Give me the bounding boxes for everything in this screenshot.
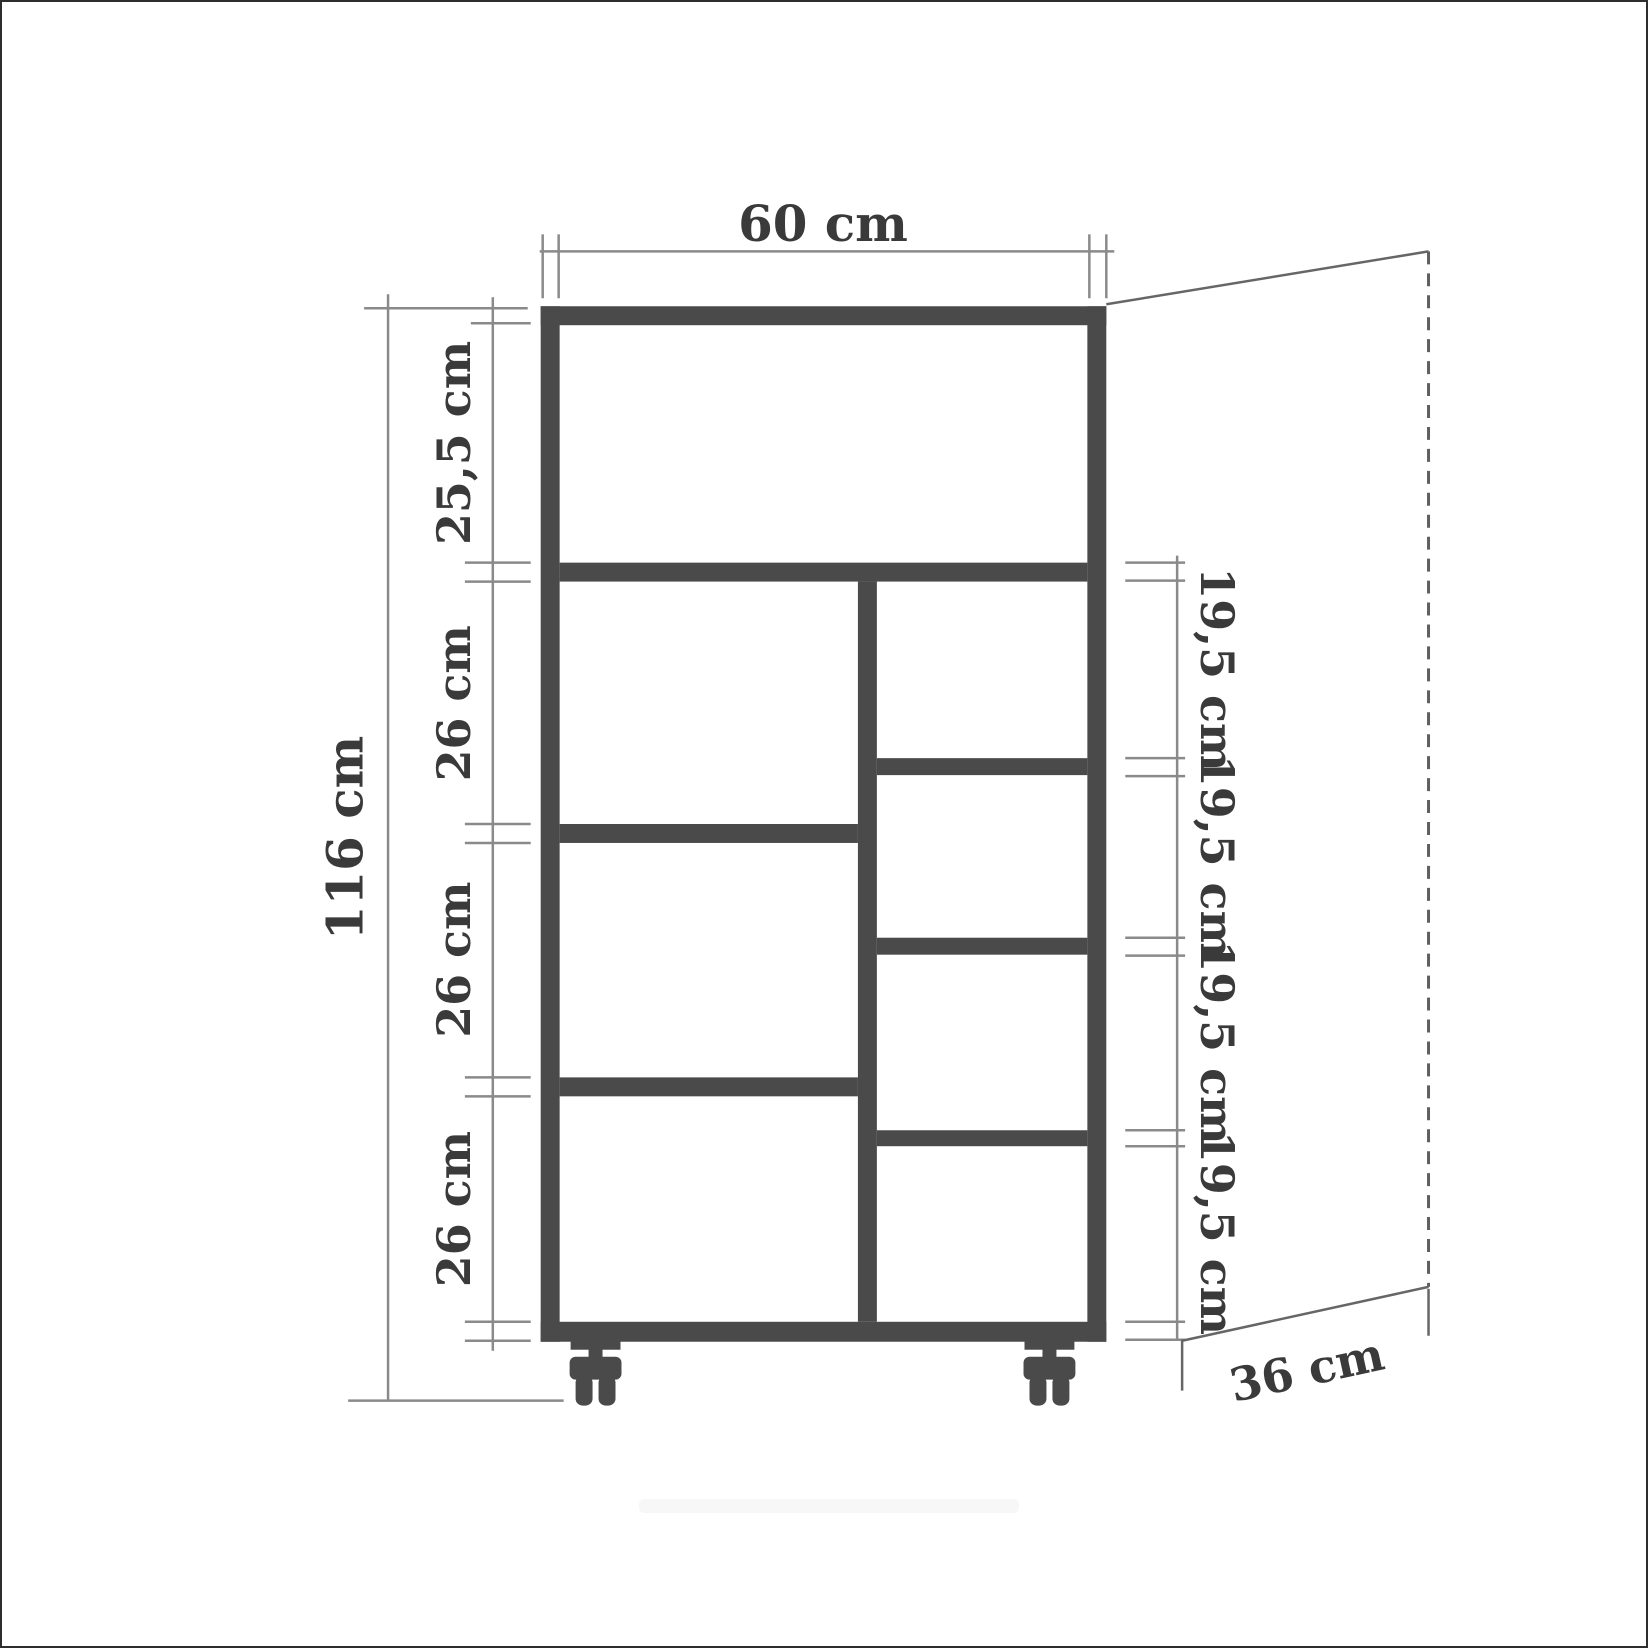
cabinet-top-panel <box>541 306 1107 325</box>
depth-dimension-label: 36 cm <box>1225 1327 1389 1413</box>
cabinet-left-side-panel <box>541 306 560 1341</box>
right-sections-dimension-group <box>1125 556 1185 1341</box>
right-section-1-label: 19,5 cm <box>1190 567 1244 771</box>
right-caster-plate <box>1025 1340 1075 1350</box>
left-column-shelf-1 <box>560 824 858 843</box>
left-caster-body <box>570 1357 622 1380</box>
width-dimension-label: 60 cm <box>738 194 908 253</box>
technical-drawing-canvas: 60 cm 116 cm 25,5 cm 26 cm 26 cm 26 cm 1… <box>0 0 1648 1648</box>
left-column-shelf-2 <box>560 1077 858 1096</box>
right-section-2-label: 19,5 cm <box>1190 755 1244 959</box>
dimension-labels: 60 cm 116 cm 25,5 cm 26 cm 26 cm 26 cm 1… <box>316 194 1389 1413</box>
right-column-shelf-1 <box>877 758 1087 775</box>
left-section-2-label: 26 cm <box>427 625 481 781</box>
full-width-shelf <box>560 563 1088 582</box>
left-section-3-label: 26 cm <box>427 882 481 1038</box>
vertical-divider-panel <box>858 582 877 1322</box>
watermark-smudge <box>639 1499 1019 1513</box>
right-caster-body <box>1024 1357 1076 1380</box>
right-section-4-label: 19,5 cm <box>1190 1131 1244 1335</box>
cabinet-dimension-diagram: 60 cm 116 cm 25,5 cm 26 cm 26 cm 26 cm 1… <box>2 2 1646 1646</box>
left-caster-plate <box>571 1340 621 1350</box>
depth-projection-group <box>1106 251 1428 1390</box>
left-section-4-label: 26 cm <box>427 1131 481 1287</box>
cabinet-right-side-panel <box>1087 306 1106 1341</box>
right-section-3-label: 19,5 cm <box>1190 940 1244 1144</box>
height-dimension-label: 116 cm <box>316 736 375 941</box>
left-caster-prong-front <box>576 1376 593 1406</box>
right-caster-prong-back <box>1052 1376 1069 1406</box>
depth-projection-top-diagonal <box>1106 251 1428 304</box>
right-caster-wheel <box>1024 1340 1076 1406</box>
cabinet-bottom-panel <box>541 1322 1107 1342</box>
right-caster-prong-front <box>1030 1376 1047 1406</box>
right-column-shelf-3 <box>877 1130 1087 1146</box>
right-column-shelf-2 <box>877 938 1087 955</box>
left-caster-wheel <box>570 1340 622 1406</box>
left-section-1-label: 25,5 cm <box>427 341 481 545</box>
cabinet-structure <box>541 306 1107 1341</box>
left-caster-prong-back <box>599 1376 616 1406</box>
